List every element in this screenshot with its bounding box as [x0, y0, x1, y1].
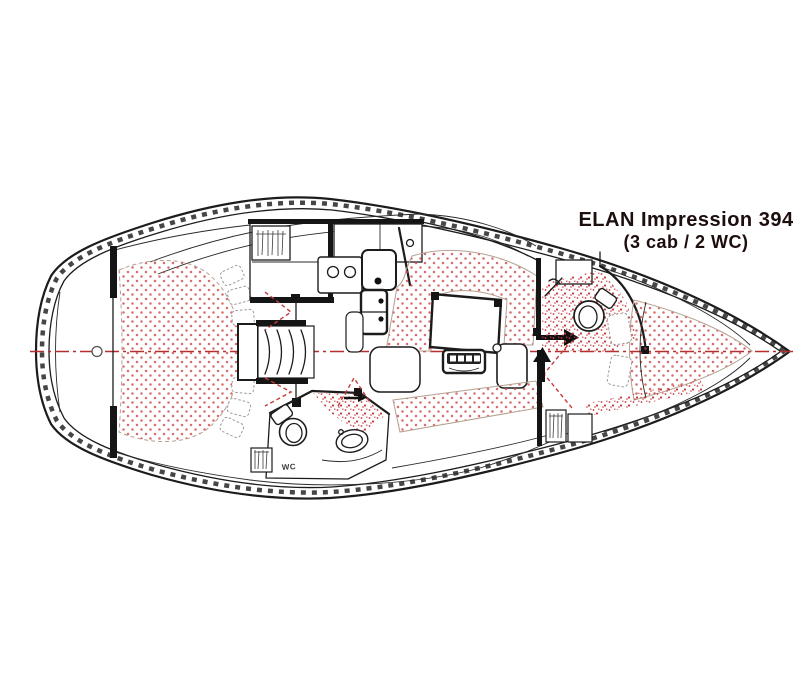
transom-bulkhead-post-bottom	[110, 406, 117, 458]
pillow	[227, 285, 252, 305]
pillow	[219, 264, 245, 287]
saloon-table	[430, 294, 501, 353]
rudder-post-marker	[92, 347, 102, 357]
title-line-1: ELAN Impression 394	[578, 209, 794, 231]
pillow	[219, 416, 245, 439]
pillow	[607, 354, 633, 387]
door-hinge-block	[533, 328, 541, 336]
wc-label: WC	[282, 462, 297, 472]
yacht-layout-diagram: WC	[0, 0, 800, 700]
coachroof-side-wall-top	[248, 219, 424, 224]
nav-seat	[370, 347, 420, 392]
heater-seat	[443, 350, 485, 373]
aft-cabin	[110, 246, 255, 458]
hanging-locker-fwd	[546, 410, 566, 442]
boat-title: ELAN Impression 394 (3 cab / 2 WC)	[578, 209, 794, 252]
engine-box-side	[238, 324, 258, 380]
steps-wall-bottom	[256, 378, 308, 384]
stove	[318, 257, 362, 293]
icebox-handle	[378, 298, 383, 303]
fwd-locker	[568, 414, 592, 442]
boat-plan-canvas: WC	[0, 0, 800, 700]
table-clamp	[494, 299, 502, 307]
passage-arrow-up	[533, 347, 551, 382]
shower-floor	[313, 393, 386, 436]
mast-post-marker	[493, 344, 501, 352]
transom-bulkhead-post-top	[110, 246, 117, 298]
washbasin-icon	[322, 427, 382, 462]
bulkhead-upper	[536, 258, 541, 332]
pillow	[226, 397, 251, 417]
title-line-2: (3 cab / 2 WC)	[623, 232, 748, 252]
counter-end	[346, 312, 363, 352]
chart-table-seat	[497, 344, 527, 388]
sink-drain-icon	[375, 278, 382, 285]
aft-berth-mattress	[119, 260, 240, 441]
door-hinge-block	[291, 294, 300, 303]
pillow	[607, 312, 633, 345]
steps-wall-top	[256, 320, 306, 326]
table-clamp	[431, 292, 439, 300]
icebox-handle	[378, 316, 383, 321]
